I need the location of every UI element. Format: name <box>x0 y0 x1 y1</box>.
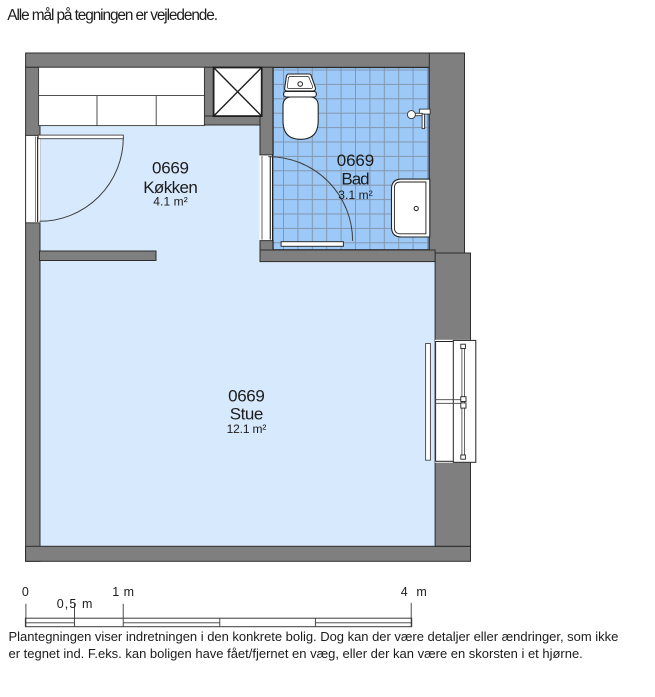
svg-text:0,5 m: 0,5 m <box>57 597 93 611</box>
svg-text:1 m: 1 m <box>112 585 134 599</box>
svg-text:er tegnet ind. F.eks. kan boli: er tegnet ind. F.eks. kan boligen have f… <box>9 646 583 661</box>
svg-text:0669: 0669 <box>152 159 189 178</box>
svg-text:Bad: Bad <box>341 169 369 188</box>
svg-text:3.1 m²: 3.1 m² <box>338 188 372 202</box>
svg-text:Alle mål på tegningen er vejle: Alle mål på tegningen er vejledende. <box>7 7 218 24</box>
svg-text:4 m: 4 m <box>401 585 427 599</box>
svg-text:0: 0 <box>22 585 29 599</box>
svg-text:12.1 m²: 12.1 m² <box>227 422 267 436</box>
svg-text:0669: 0669 <box>228 387 265 406</box>
svg-text:0669: 0669 <box>337 151 374 170</box>
svg-text:Stue: Stue <box>230 404 264 423</box>
svg-text:4.1 m²: 4.1 m² <box>153 195 187 209</box>
svg-text:Plantegningen viser indretning: Plantegningen viser indretningen i den k… <box>9 629 619 644</box>
